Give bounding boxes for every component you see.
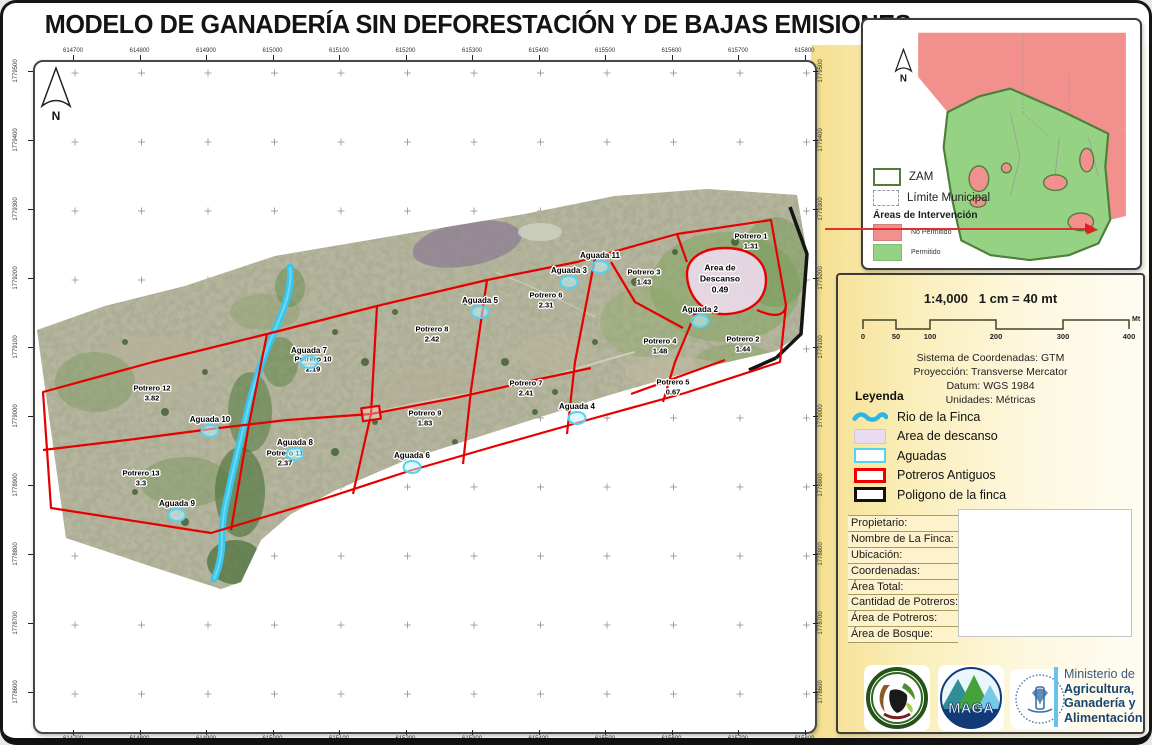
x-tick-top: 615000	[262, 48, 282, 54]
y-tickmark-right	[813, 209, 818, 210]
y-tick-right: 1778700	[818, 611, 824, 634]
zam-swatch	[873, 168, 901, 186]
legend-item-label: Aguadas	[897, 449, 946, 463]
footer-logos: MAGA Ministerio deAgricultura,Ganadería …	[850, 665, 1140, 731]
x-tickmark-top	[672, 55, 673, 60]
x-tickmark-bottom	[672, 730, 673, 735]
limite-municipal-label: Límite Municipal	[907, 192, 990, 204]
scale-bar-unit: Mt	[1132, 316, 1140, 323]
y-tickmark-right	[813, 278, 818, 279]
property-info-table: Propietario:Nombre de La Finca:Ubicación…	[848, 515, 958, 643]
info-row-label: Nombre de La Finca:	[848, 532, 958, 548]
x-tick-top: 614800	[129, 48, 149, 54]
y-tickmark-left	[28, 71, 33, 72]
ministry-line: Alimentación	[1064, 711, 1143, 726]
x-tickmark-bottom	[738, 730, 739, 735]
legend-item: Area de descanso	[852, 427, 1132, 447]
x-tick-top: 615800	[794, 48, 814, 54]
scale-bar-tick: 100	[924, 332, 937, 341]
no-permitido-label: No Permitido	[911, 229, 951, 236]
legend-item: Aguadas	[852, 446, 1132, 466]
x-tickmark-bottom	[472, 730, 473, 735]
x-tick-bottom: 615700	[728, 736, 748, 742]
x-tickmark-top	[140, 55, 141, 60]
x-tick-bottom: 615200	[395, 736, 415, 742]
y-tickmark-right	[813, 71, 818, 72]
y-tick-left: 1778600	[13, 680, 19, 703]
inset-legend: ZAM Límite Municipal Áreas de Intervenci…	[873, 168, 990, 264]
info-row-label: Área Total:	[848, 580, 958, 596]
x-tickmark-bottom	[805, 730, 806, 735]
x-tickmark-top	[73, 55, 74, 60]
y-tick-right: 1779000	[818, 404, 824, 427]
x-tickmark-top	[472, 55, 473, 60]
y-tickmark-right	[813, 416, 818, 417]
legend-item-label: Poligono de la finca	[897, 488, 1006, 502]
legend-item: Potreros Antiguos	[852, 466, 1132, 486]
y-tick-left: 1778800	[13, 542, 19, 565]
info-sidebar: 1:4,000 1 cm = 40 mt Mt 050100200300400 …	[836, 273, 1145, 734]
x-tickmark-top	[539, 55, 540, 60]
x-tick-top: 615200	[395, 48, 415, 54]
y-tickmark-left	[28, 347, 33, 348]
x-tick-bottom: 615500	[595, 736, 615, 742]
x-tick-bottom: 615100	[329, 736, 349, 742]
zam-label: ZAM	[909, 171, 933, 183]
x-tick-bottom: 614800	[129, 736, 149, 742]
scale-bar-tick: 400	[1123, 332, 1136, 341]
permitido-label: Permitido	[911, 249, 941, 256]
y-tickmark-left	[28, 554, 33, 555]
y-tickmark-right	[813, 554, 818, 555]
rest-swatch	[854, 429, 886, 444]
scale-bar-wave	[846, 315, 1142, 331]
permitido-swatch	[873, 244, 902, 261]
legend-items: Rio de la FincaArea de descansoAguadasPo…	[852, 407, 1132, 505]
x-tick-top: 614700	[63, 48, 83, 54]
north-arrow: N	[42, 68, 70, 123]
legend-item: Rio de la Finca	[852, 407, 1132, 427]
y-tick-left: 1779500	[13, 59, 19, 82]
y-tick-right: 1778800	[818, 542, 824, 565]
property-info-values	[958, 509, 1132, 637]
y-tickmark-left	[28, 209, 33, 210]
potrero-swatch	[854, 468, 886, 483]
scale-ratio: 1:4,000	[924, 291, 968, 306]
ministry-bar	[1054, 667, 1058, 727]
y-tickmark-right	[813, 485, 818, 486]
y-tick-left: 1778700	[13, 611, 19, 634]
y-tick-left: 1779400	[13, 128, 19, 151]
x-tick-bottom: 615000	[262, 736, 282, 742]
x-tickmark-bottom	[273, 730, 274, 735]
legend-header: Leyenda	[855, 389, 904, 403]
y-tickmark-left	[28, 140, 33, 141]
crs-line: Proyección: Transverse Mercator	[838, 365, 1143, 379]
page-title: MODELO DE GANADERÍA SIN DEFORESTACIÓN Y …	[45, 9, 802, 40]
x-tick-bottom: 615300	[462, 736, 482, 742]
y-tick-right: 1779400	[818, 128, 824, 151]
aguada-symbol	[852, 447, 888, 464]
legend-item: Poligono de la finca	[852, 485, 1132, 505]
location-link-line	[825, 228, 1087, 230]
river-symbol	[852, 409, 888, 425]
inset-map-panel: N ZAM Límite Municipal Áreas de Interven…	[861, 18, 1142, 270]
x-tickmark-top	[273, 55, 274, 60]
info-row-label: Área de Bosque:	[848, 627, 958, 643]
info-row-label: Ubicación:	[848, 548, 958, 564]
scale-bar-tick: 50	[892, 332, 900, 341]
limite-municipal-swatch	[873, 190, 899, 206]
y-tick-left: 1779300	[13, 197, 19, 220]
x-tickmark-bottom	[406, 730, 407, 735]
x-tick-bottom: 615800	[794, 736, 814, 742]
x-tickmark-bottom	[605, 730, 606, 735]
maga-logo: MAGA	[938, 665, 1004, 731]
x-tickmark-top	[339, 55, 340, 60]
ministry-wordmark: Ministerio deAgricultura,Ganadería yAlim…	[1054, 667, 1143, 727]
ministry-line: Ganadería y	[1064, 696, 1143, 711]
info-row-label: Cantidad de Potreros:	[848, 595, 958, 611]
x-tick-top: 615100	[329, 48, 349, 54]
info-row-label: Propietario:	[848, 515, 958, 532]
info-row-label: Coordenadas:	[848, 564, 958, 580]
ministry-line: Agricultura,	[1064, 682, 1143, 697]
potrero-symbol	[852, 467, 888, 484]
scale-text: 1:4,000 1 cm = 40 mt	[838, 291, 1143, 306]
maga-logo-text: MAGA	[948, 700, 994, 717]
y-tickmark-left	[28, 416, 33, 417]
x-tick-top: 615300	[462, 48, 482, 54]
y-tick-left: 1778900	[13, 473, 19, 496]
no-permitido-swatch	[873, 224, 902, 241]
x-tick-top: 615500	[595, 48, 615, 54]
x-tick-bottom: 614900	[196, 736, 216, 742]
svg-text:N: N	[52, 109, 61, 123]
y-tickmark-right	[813, 623, 818, 624]
x-tickmark-bottom	[539, 730, 540, 735]
scale-equivalence: 1 cm = 40 mt	[979, 291, 1057, 306]
poligono-swatch	[854, 487, 886, 502]
scale-bar-tick: 200	[990, 332, 1003, 341]
legend-item-label: Rio de la Finca	[897, 410, 980, 424]
x-tickmark-top	[738, 55, 739, 60]
orthophoto-strip	[35, 62, 815, 732]
svg-text:N: N	[900, 74, 907, 85]
location-link-arrow	[1085, 223, 1095, 233]
x-tick-bottom: 614700	[63, 736, 83, 742]
x-tickmark-bottom	[339, 730, 340, 735]
y-tick-right: 1779100	[818, 335, 824, 358]
x-tick-top: 614900	[196, 48, 216, 54]
main-map-panel: N	[33, 60, 817, 734]
main-map-canvas: N	[35, 62, 815, 732]
y-tick-right: 1778900	[818, 473, 824, 496]
x-tickmark-top	[605, 55, 606, 60]
scale-bar-tick: 300	[1057, 332, 1070, 341]
legend-item-label: Potreros Antiguos	[897, 468, 996, 482]
crs-line: Sistema de Coordenadas: GTM	[838, 351, 1143, 365]
y-tickmark-right	[813, 140, 818, 141]
x-tick-top: 615700	[728, 48, 748, 54]
x-tick-bottom: 615400	[528, 736, 548, 742]
y-tickmark-left	[28, 623, 33, 624]
x-tick-top: 615400	[528, 48, 548, 54]
ganaderia-logo	[864, 665, 930, 731]
ministry-line: Ministerio de	[1064, 667, 1143, 682]
river-symbol	[852, 408, 888, 425]
y-tickmark-right	[813, 692, 818, 693]
page: MODELO DE GANADERÍA SIN DEFORESTACIÓN Y …	[0, 0, 1152, 745]
rest-area-polygon	[687, 248, 766, 314]
areas-intervencion-header: Áreas de Intervención	[873, 210, 990, 221]
y-tick-right: 1779200	[818, 266, 824, 289]
y-tick-left: 1779100	[13, 335, 19, 358]
x-tickmark-top	[805, 55, 806, 60]
y-tickmark-left	[28, 278, 33, 279]
poligono-symbol	[852, 486, 888, 503]
y-tick-left: 1779200	[13, 266, 19, 289]
y-tick-right: 1779300	[818, 197, 824, 220]
scale-bar-tick: 0	[861, 332, 865, 341]
x-tick-top: 615600	[661, 48, 681, 54]
x-tickmark-bottom	[206, 730, 207, 735]
x-tickmark-bottom	[140, 730, 141, 735]
x-tick-bottom: 615600	[661, 736, 681, 742]
x-tickmark-bottom	[73, 730, 74, 735]
inset-north-arrow: N	[896, 49, 912, 84]
scale-bar: Mt 050100200300400	[846, 315, 1142, 349]
y-tickmark-left	[28, 692, 33, 693]
legend-item-label: Area de descanso	[897, 429, 998, 443]
info-row-label: Área de Potreros:	[848, 611, 958, 627]
rest-symbol	[852, 428, 888, 445]
x-tickmark-top	[406, 55, 407, 60]
y-tickmark-left	[28, 485, 33, 486]
aguada-swatch	[854, 448, 886, 463]
ministry-lines: Ministerio deAgricultura,Ganadería yAlim…	[1064, 667, 1143, 727]
y-tick-right: 1778600	[818, 680, 824, 703]
y-tick-right: 1779500	[818, 59, 824, 82]
x-tickmark-top	[206, 55, 207, 60]
y-tickmark-right	[813, 347, 818, 348]
y-tick-left: 1779000	[13, 404, 19, 427]
